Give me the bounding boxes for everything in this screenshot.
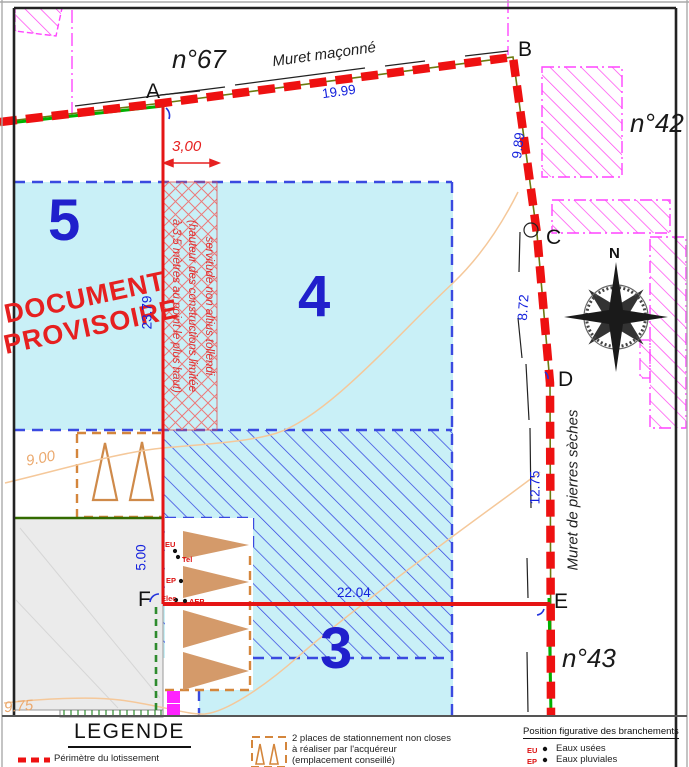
dim-servitude-width: 3,00 <box>172 138 201 155</box>
point-d-label: D <box>558 368 573 392</box>
lot-4-number: 4 <box>298 268 330 326</box>
branchement-aep-tag: AEP <box>189 597 204 606</box>
dim-f-gray: 5.00 <box>134 544 149 570</box>
branchement-elec-tag: Elec <box>161 594 176 603</box>
contour-975-label: 9.75 <box>3 697 34 716</box>
point-c-label: C <box>546 226 561 250</box>
legend-eu-label: EU <box>527 746 537 755</box>
legend-title: LEGENDE <box>68 720 191 748</box>
legend-parking-note-2: à réaliser par l'acquéreur <box>292 744 397 755</box>
lot-3-number: 3 <box>320 620 352 678</box>
dim-bc: 9.89 <box>509 132 527 160</box>
dim-af: 23.79 <box>139 296 154 330</box>
parcel-n43-label: n°43 <box>562 643 616 674</box>
point-e-label: E <box>554 590 568 614</box>
legend-ep-label: EP <box>527 757 537 766</box>
legend-perimeter-label: Périmètre du lotissement <box>54 753 159 764</box>
lot-5-number: 5 <box>48 192 80 250</box>
point-a-label: A <box>146 80 160 104</box>
dry-stone-wall-label: Muret de pierres sèches <box>565 411 582 571</box>
servitude-note: servitude non altius tollendi (hauteur d… <box>163 181 217 431</box>
point-b-label: B <box>518 38 532 62</box>
parcel-n42-label: n°42 <box>630 108 684 139</box>
dim-fe: 22.04 <box>337 585 371 600</box>
point-f-label: F <box>138 588 151 612</box>
branchement-eu-tag: EU <box>165 540 175 549</box>
branchement-ep-tag: EP <box>166 576 176 585</box>
legend-ep-text: Eaux pluviales <box>556 754 617 765</box>
branchement-tel-tag: Tel <box>182 555 192 564</box>
legend-branchements-title: Position figurative des branchements <box>523 726 679 739</box>
legend-eu-text: Eaux usées <box>556 743 606 754</box>
legend-parking-note-1: 2 places de stationnement non closes <box>292 733 451 744</box>
compass-north-label: N <box>609 245 620 262</box>
dim-cd: 8.72 <box>515 294 532 321</box>
legend-parking-note-3: (emplacement conseillé) <box>292 755 395 766</box>
parcel-n67-label: n°67 <box>172 44 226 75</box>
dim-de: 12.75 <box>527 471 542 505</box>
site-plan-page: n°67 n°42 n°43 5 4 3 DOCUMENT PROVISOIRE… <box>0 0 689 767</box>
